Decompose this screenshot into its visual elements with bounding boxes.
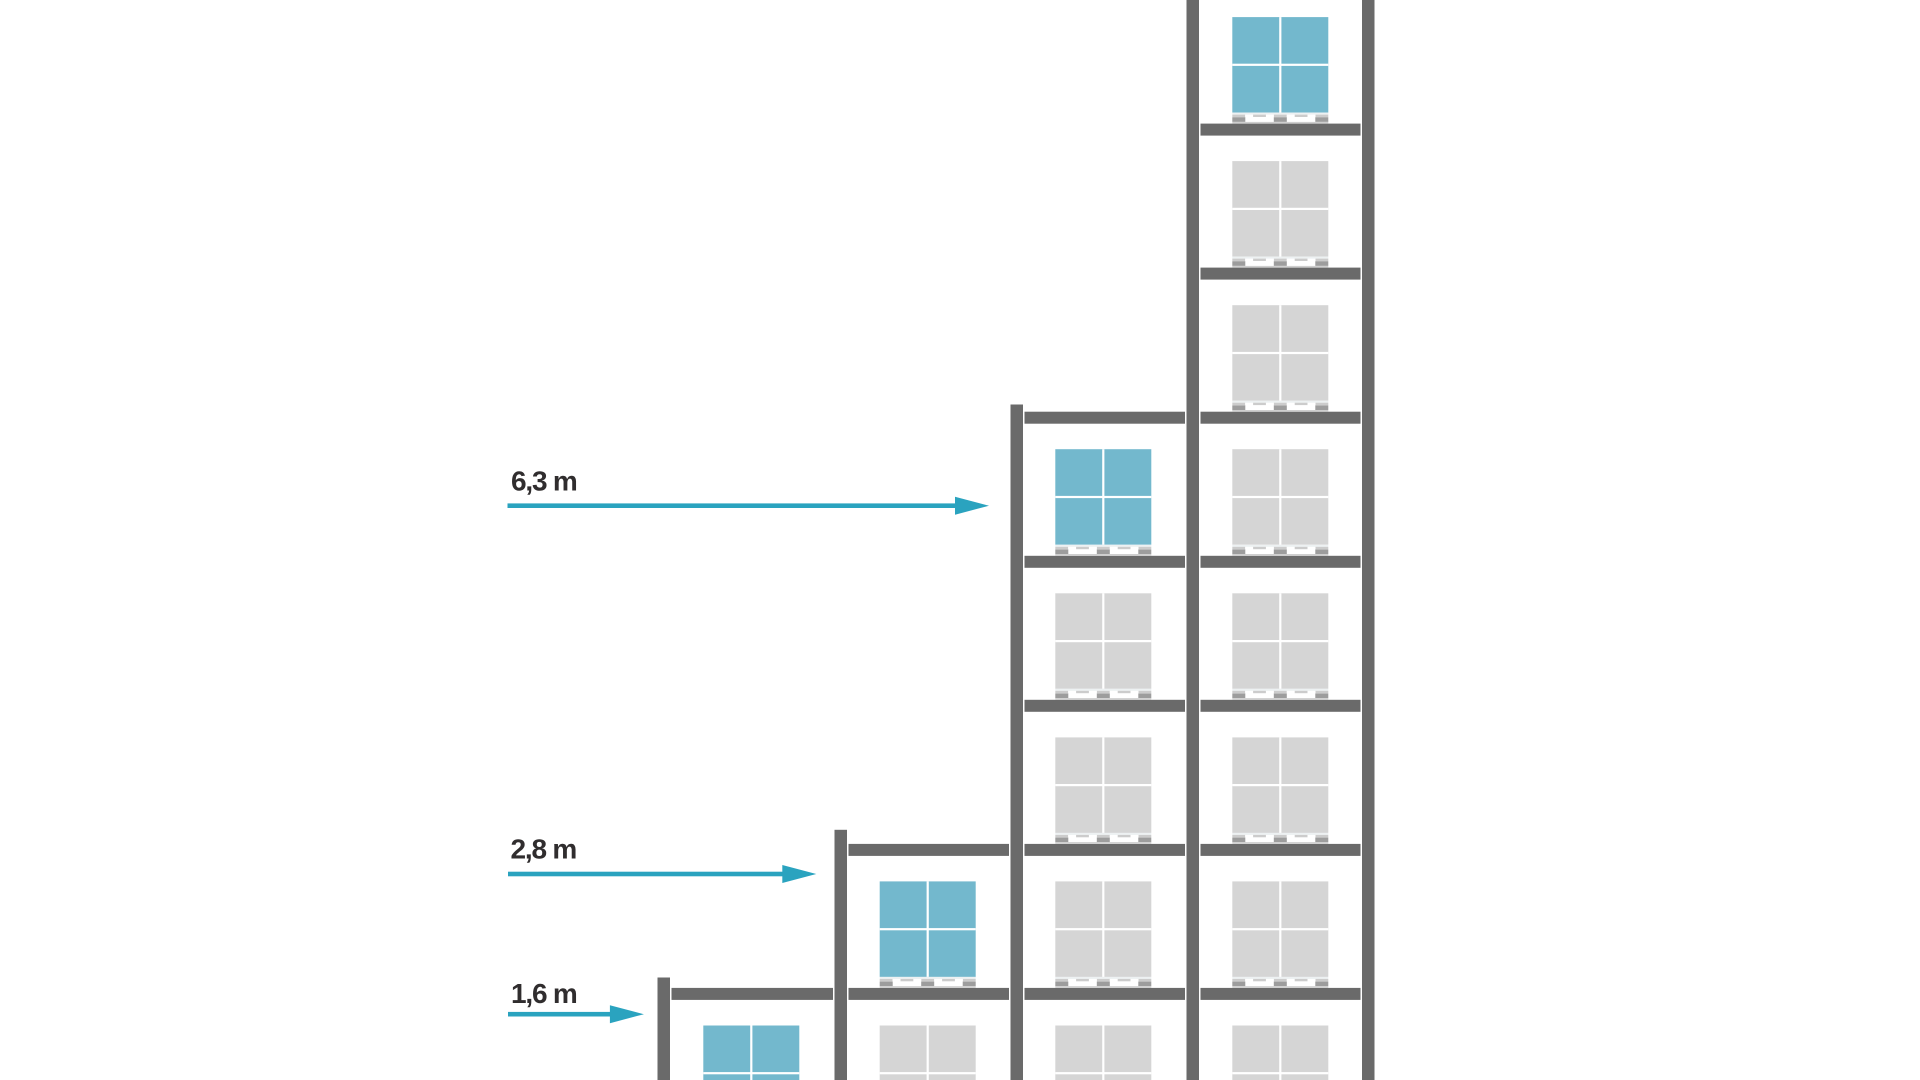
svg-text:1,6 m: 1,6 m — [511, 978, 577, 1009]
svg-text:2,8 m: 2,8 m — [511, 834, 577, 865]
svg-text:6,3 m: 6,3 m — [511, 466, 577, 497]
